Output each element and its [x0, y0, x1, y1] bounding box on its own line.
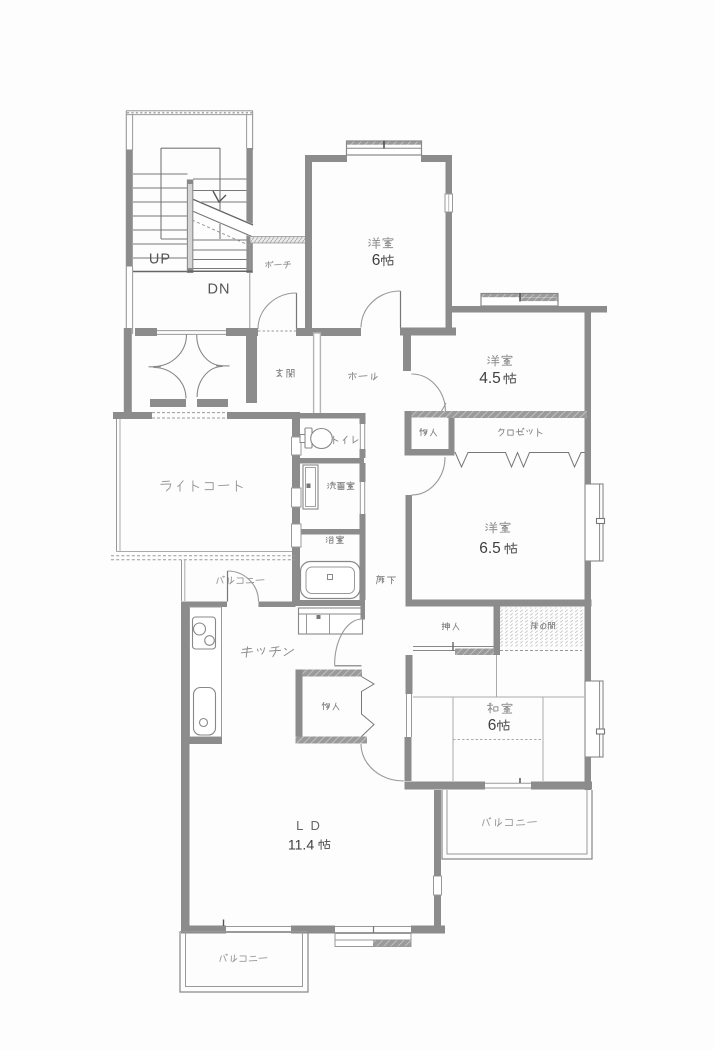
svg-text:DN: DN: [208, 282, 231, 298]
svg-text:UP: UP: [149, 252, 171, 268]
svg-text:6.5: 6.5: [479, 540, 501, 557]
svg-text:11.4: 11.4: [288, 837, 314, 853]
svg-text:L D: L D: [296, 818, 322, 833]
svg-text:4.5: 4.5: [479, 370, 501, 387]
svg-text:6: 6: [372, 252, 381, 269]
svg-text:6: 6: [488, 717, 497, 734]
